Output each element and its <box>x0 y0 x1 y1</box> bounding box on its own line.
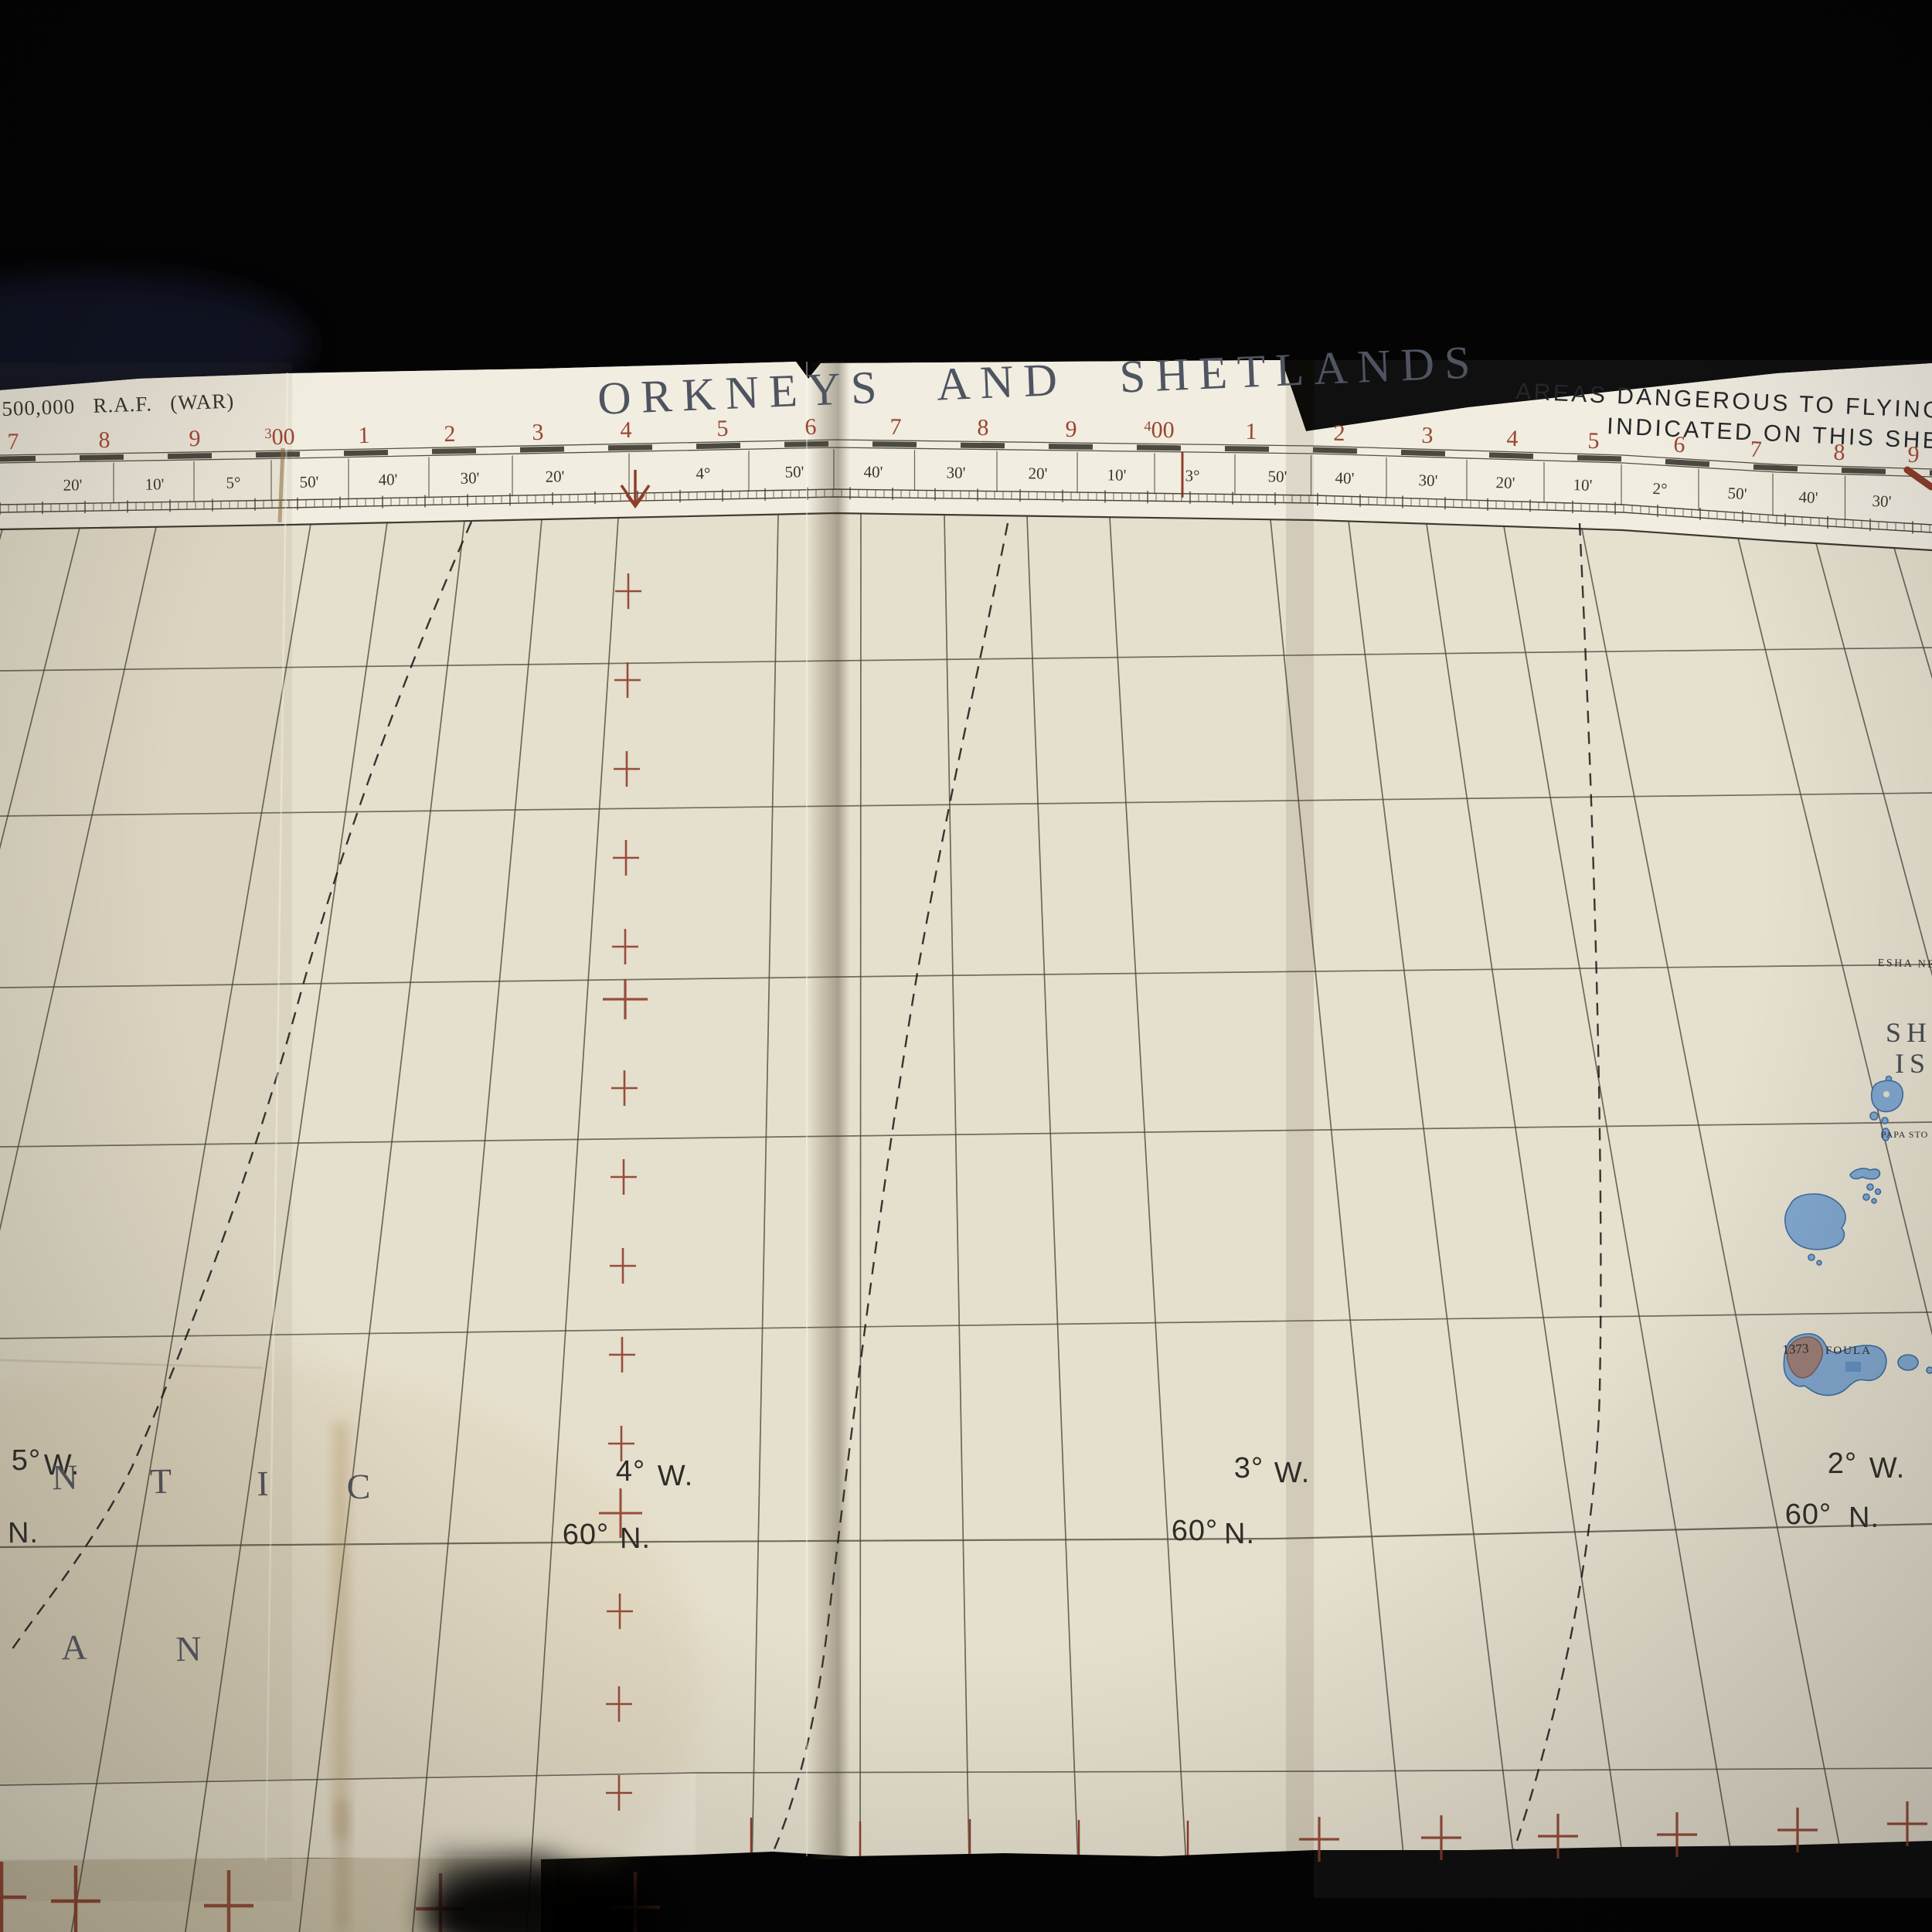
map-sheet-graphic <box>0 0 1932 1932</box>
map-photograph: 500,000 R.A.F. (WAR) ORKNEYS AND SHETLAN… <box>0 0 1932 1932</box>
